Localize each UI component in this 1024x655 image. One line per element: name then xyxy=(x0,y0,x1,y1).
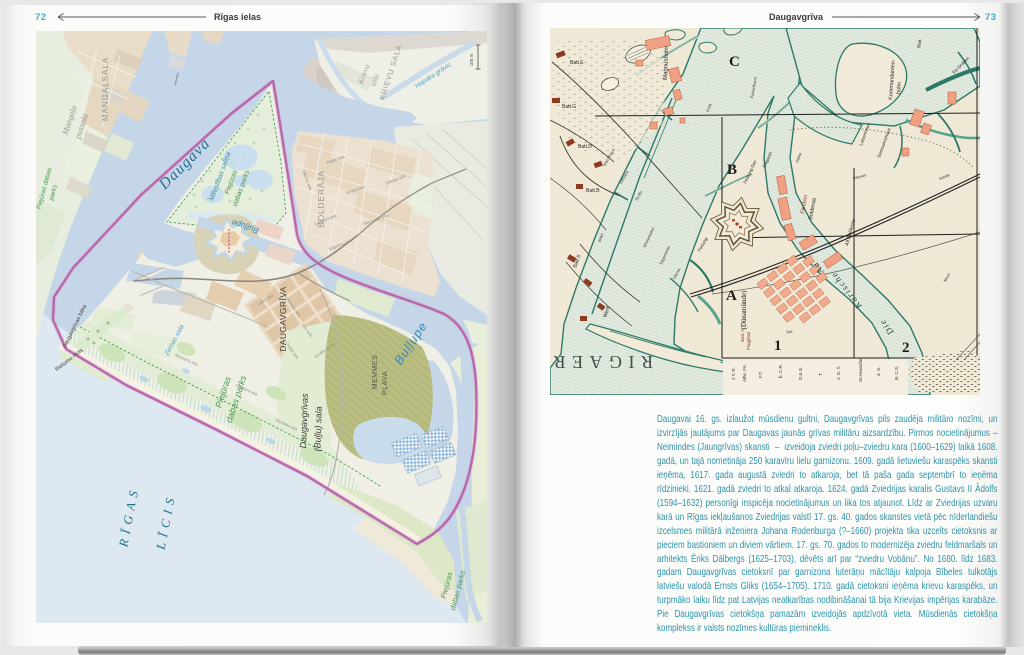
svg-text:Daugavgrīvas: Daugavgrīvas xyxy=(298,393,310,449)
svg-text:D.& G.: D.& G. xyxy=(798,366,803,380)
svg-text:Flugplatz: Flugplatz xyxy=(746,331,751,350)
svg-text:MEMMES: MEMMES xyxy=(372,355,379,390)
svg-text:B. C.S.: B. C.S. xyxy=(894,366,899,380)
svg-text:T.: T. xyxy=(818,372,823,376)
svg-text:Batt.E: Batt.E xyxy=(570,60,584,66)
svg-text:2: 2 xyxy=(902,340,910,356)
svg-text:Batt.B: Batt.B xyxy=(586,188,600,194)
svg-text:(Buļļu) sala: (Buļļu) sala xyxy=(312,406,324,451)
svg-text:J. G. T.: J. G. T. xyxy=(836,366,841,380)
svg-text:2 T. R.: 2 T. R. xyxy=(731,367,736,380)
svg-text:RIGAER: RIGAER xyxy=(550,352,653,372)
svg-text:4. S.: 4. S. xyxy=(876,367,881,376)
svg-text:A: A xyxy=(726,288,737,304)
svg-text:Batt.D: Batt.D xyxy=(578,144,592,150)
svg-text:MANGAĻSALA: MANGAĻSALA xyxy=(101,57,110,121)
svg-text:Gr.Hassche: Gr.Hassche xyxy=(858,358,863,382)
svg-text:Batt.G: Batt.G xyxy=(562,104,576,110)
svg-text:C: C xyxy=(729,54,740,70)
svg-text:1: 1 xyxy=(774,338,782,354)
svg-text:Magnusholm: Magnusholm xyxy=(663,46,670,81)
svg-text:100 m: 100 m xyxy=(469,53,474,66)
svg-text:b. C.R.: b. C.R. xyxy=(778,364,783,378)
svg-text:F.T.: F.T. xyxy=(758,371,763,378)
svg-text:(Dünamünde): (Dünamünde) xyxy=(740,290,748,330)
svg-text:Bat.: Bat. xyxy=(786,329,794,335)
svg-text:holm: holm xyxy=(896,81,903,94)
svg-text:Alhs. FA.: Alhs. FA. xyxy=(742,364,747,382)
svg-text:B: B xyxy=(727,162,737,178)
svg-text:PĻAVA: PĻAVA xyxy=(382,371,389,395)
svg-text:Batt. A: Batt. A xyxy=(740,329,745,342)
